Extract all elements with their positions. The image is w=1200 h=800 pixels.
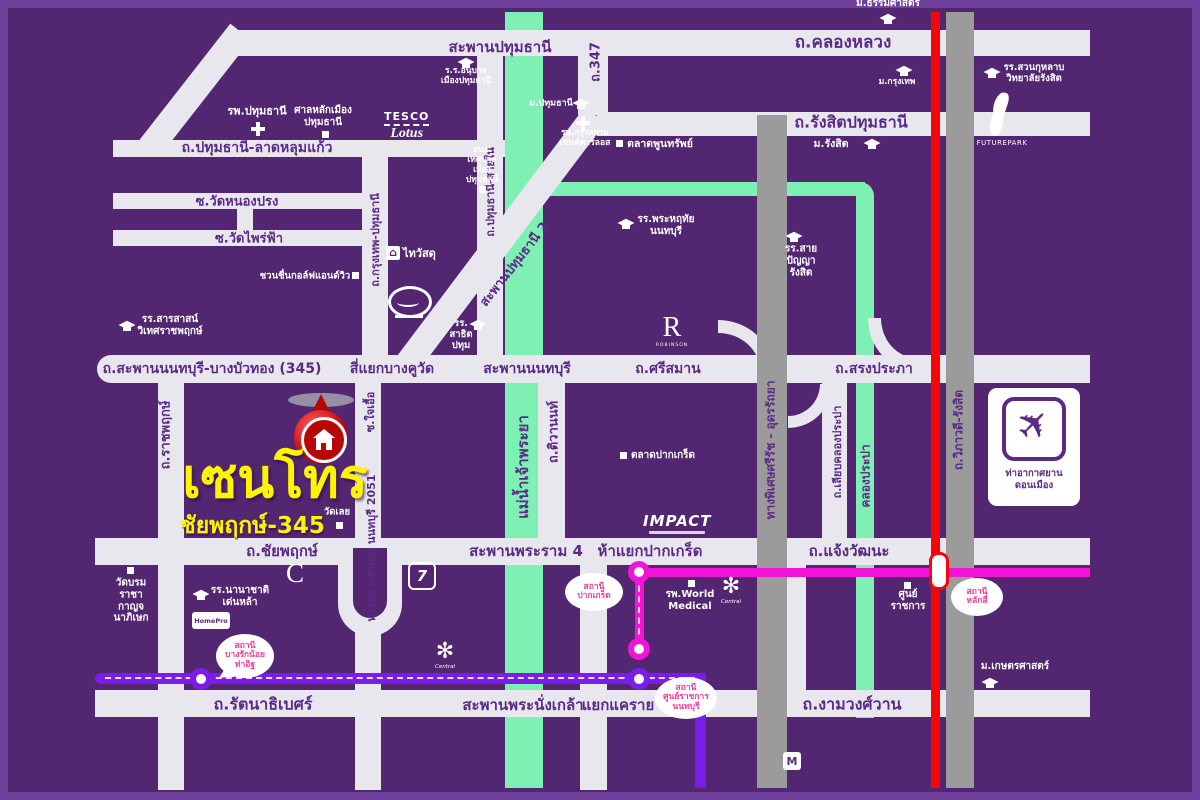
place-label: วัดบรม ราชา กาญจ นาภิเษก <box>113 577 148 624</box>
road-label: ถ.วิภาวดี-รังสิต <box>950 390 969 470</box>
place-label: รพ.กรุงสยาม เซนต์คาร์ลอส <box>560 128 611 148</box>
seven-eleven-icon: 7 <box>408 562 436 590</box>
hospital-cross-icon <box>576 116 590 130</box>
robinson-r: R <box>652 314 692 342</box>
homepro-logo: HomePro <box>192 612 230 629</box>
place-label: รร.พระหฤทัย นนทบุรี <box>638 214 695 238</box>
impact-subtext <box>649 531 705 534</box>
place-label: ชวนชื่นกอล์ฟแอนด์วิว <box>260 270 350 281</box>
don-mueang-airport: ✈ ท่าอากาศยาน ดอนเมือง <box>988 388 1080 506</box>
robinson-logo: R ROBINSON <box>652 314 692 348</box>
road-label: ทางพิเศษศรีรัช - อุดรรัถยา <box>762 381 781 520</box>
place-label: รพ.ปทุมธานี <box>227 106 286 119</box>
lotus-text: Lotus <box>384 126 429 142</box>
place-label: ตลาดปากเกร็ด <box>631 450 695 462</box>
mall-ngamwongwan-logo: M <box>783 752 801 770</box>
road-label: แยกแคราย <box>582 693 655 717</box>
road-label: สะพานพระราม 4 <box>469 539 583 563</box>
place-label: ม.รังสิต <box>814 138 849 150</box>
place-square-icon <box>127 567 134 574</box>
road-label: ถ.รัง​สิตปทุมธานี <box>794 111 907 136</box>
futurepark-text: FUTUREPARK <box>972 139 1032 147</box>
graduation-cap-icon <box>458 56 474 69</box>
mall-logo-letter: M <box>787 755 798 768</box>
road-label: ถ.ปทุมธานี-ลาดหลุมแก้ว <box>182 137 333 159</box>
place-label: ศูนย์ ราชการ <box>891 589 926 613</box>
c-logo-letter: C <box>286 558 304 588</box>
graduation-cap-icon <box>193 588 209 601</box>
road-label: ถ.คลองหลวง <box>795 29 892 56</box>
impact-text: IMPACT <box>643 512 712 530</box>
road-label: สะพานพระนั่งเกล้า <box>462 693 583 717</box>
station-marker <box>628 561 650 583</box>
place-label: รร.สาย ปัญญา รังสิต <box>785 243 817 278</box>
station-bubble: สถานี ปากเกร็ด <box>565 573 623 611</box>
laksi-station-marker <box>929 552 949 590</box>
project-subtitle: ชัยพฤกษ์-345 <box>150 508 355 544</box>
place-label: รร.สารสาสน์ วิเทศราชพฤกษ์ <box>137 314 202 338</box>
place-label: รร.นานาชาติ เด่นหล้า <box>211 585 269 609</box>
central-westgate-logo: ✻ Central <box>430 641 460 670</box>
place-square-icon <box>352 272 359 279</box>
location-map: เซนโทร ชัยพฤกษ์-345 ✈ ท่าอากาศยาน ดอนเมื… <box>0 0 1200 800</box>
central-text: Central <box>716 599 746 605</box>
hospital-cross-icon <box>251 122 265 136</box>
futurepark-swoosh-icon <box>972 92 1032 136</box>
road-label: ถ.แจ้งวัฒนะ <box>809 539 890 563</box>
place-label: รร.สวนกุหลาบ วิทยาลัยรังสิต <box>1004 62 1065 84</box>
graduation-cap-icon <box>470 318 486 331</box>
thaiwatsadu-logo: ⌂ ไทวัสดุ <box>386 244 436 262</box>
futurepark-logo: FUTUREPARK <box>972 92 1032 147</box>
project-name: เซนโทร <box>150 452 400 506</box>
place-label: ตลาดพูนทรัพย์ <box>627 138 693 150</box>
robinson-text: ROBINSON <box>652 343 692 348</box>
airport-label: ท่าอากาศยาน ดอนเมือง <box>988 468 1080 493</box>
place-square-icon <box>616 140 623 147</box>
place-label: ม.ปทุมธานี <box>529 99 573 110</box>
road-label: ซ.วัดหนองปรง <box>196 191 279 212</box>
graduation-cap-icon <box>786 230 802 243</box>
thaiwatsadu-house-icon: ⌂ <box>386 246 400 260</box>
graduation-cap-icon <box>618 217 634 230</box>
thaiwatsadu-text: ไทวัสดุ <box>403 244 436 262</box>
place-label: รพ.World Medical <box>666 589 715 613</box>
station-bubble: สถานี บางรักน้อย ท่าอิฐ <box>216 634 274 678</box>
road-label: ห้าแยกปากเกร็ด <box>598 539 703 563</box>
road-label: สี่แยกบางคูวัด <box>350 358 434 380</box>
place-label: ม.เกษตรศาสตร์ <box>981 661 1049 673</box>
central-chaengwattana-logo: ✻ Central <box>716 576 746 605</box>
graduation-cap-icon <box>880 12 896 25</box>
srt-red-line <box>931 12 940 788</box>
road-label: ซ.วัดไพร่ฟ้า <box>215 228 283 249</box>
road-label: ถ.เลียบคลองประปา <box>828 406 846 499</box>
road-label: ถ.สรงประภา <box>835 358 913 380</box>
impact-logo: IMPACT <box>643 512 712 534</box>
place-label: ม.ธรรมศาสตร์ <box>856 0 920 10</box>
road-label: ถ.ศรีสมาน <box>635 358 700 380</box>
graduation-cap-icon <box>982 676 998 689</box>
graduation-cap-icon <box>573 97 589 110</box>
road-label: ถ.รัตนาธิเบศร์ <box>214 693 313 718</box>
central-flower-icon: ✻ <box>716 576 746 598</box>
place-label: ม.กรุงเทพ <box>879 77 916 87</box>
c-mall-logo: C <box>286 560 304 587</box>
canal-horizontal <box>545 182 865 196</box>
graduation-cap-icon <box>896 64 912 77</box>
station-marker <box>190 668 212 690</box>
station-marker <box>628 668 650 690</box>
place-label: สนง. เทศบาล เมือง ปทุมธานี <box>466 145 498 185</box>
oval-logo-squiggle <box>397 298 419 307</box>
road-label: คลองประปา <box>857 444 876 507</box>
central-text: Central <box>430 664 460 670</box>
central-flower-icon: ✻ <box>430 641 460 663</box>
tesco-text: TESCO <box>384 110 429 126</box>
place-square-icon <box>620 452 627 459</box>
road-label: ถ.347 <box>585 42 606 82</box>
road-label: ถ.สะพานนนทบุรี-บางบัวทอง (345) <box>103 358 322 380</box>
road-label: แม่น้ำเจ้าพระยา <box>511 415 535 519</box>
place-label: ศาลหลักเมือง ปทุมธานี <box>294 105 352 129</box>
oval-logo-subtext <box>395 315 423 318</box>
mrt-pink-line <box>632 568 1090 577</box>
homepro-text: HomePro <box>194 617 228 625</box>
road-label: ถ.ติวานนท์ <box>543 401 564 463</box>
road-label: ซ.ใจเอื้อ <box>361 392 379 432</box>
road-label: ถ.งามวงศ์วาน <box>803 693 902 718</box>
mrt-pink-dash <box>638 575 640 645</box>
place-square-icon <box>322 131 329 138</box>
place-square-icon <box>688 580 695 587</box>
oval-store-logo <box>388 286 432 318</box>
place-square-icon <box>904 582 911 589</box>
seven-eleven-logo: 7 <box>408 562 436 590</box>
graduation-cap-icon <box>864 137 880 150</box>
station-bubble: สถานี หลักสี่ <box>951 578 1003 616</box>
tesco-lotus-logo: TESCO Lotus <box>384 110 429 142</box>
station-bubble: สถานี ศูนย์ราชการ นนทบุรี <box>655 677 717 719</box>
place-square-icon <box>479 186 486 193</box>
graduation-cap-icon <box>984 66 1000 79</box>
graduation-cap-icon <box>119 319 135 332</box>
road-label: ถ.กรุงเทพ-ปทุมธานี <box>366 193 384 287</box>
road-label: สะพานนนทบุรี <box>483 358 571 380</box>
station-marker <box>628 638 650 660</box>
